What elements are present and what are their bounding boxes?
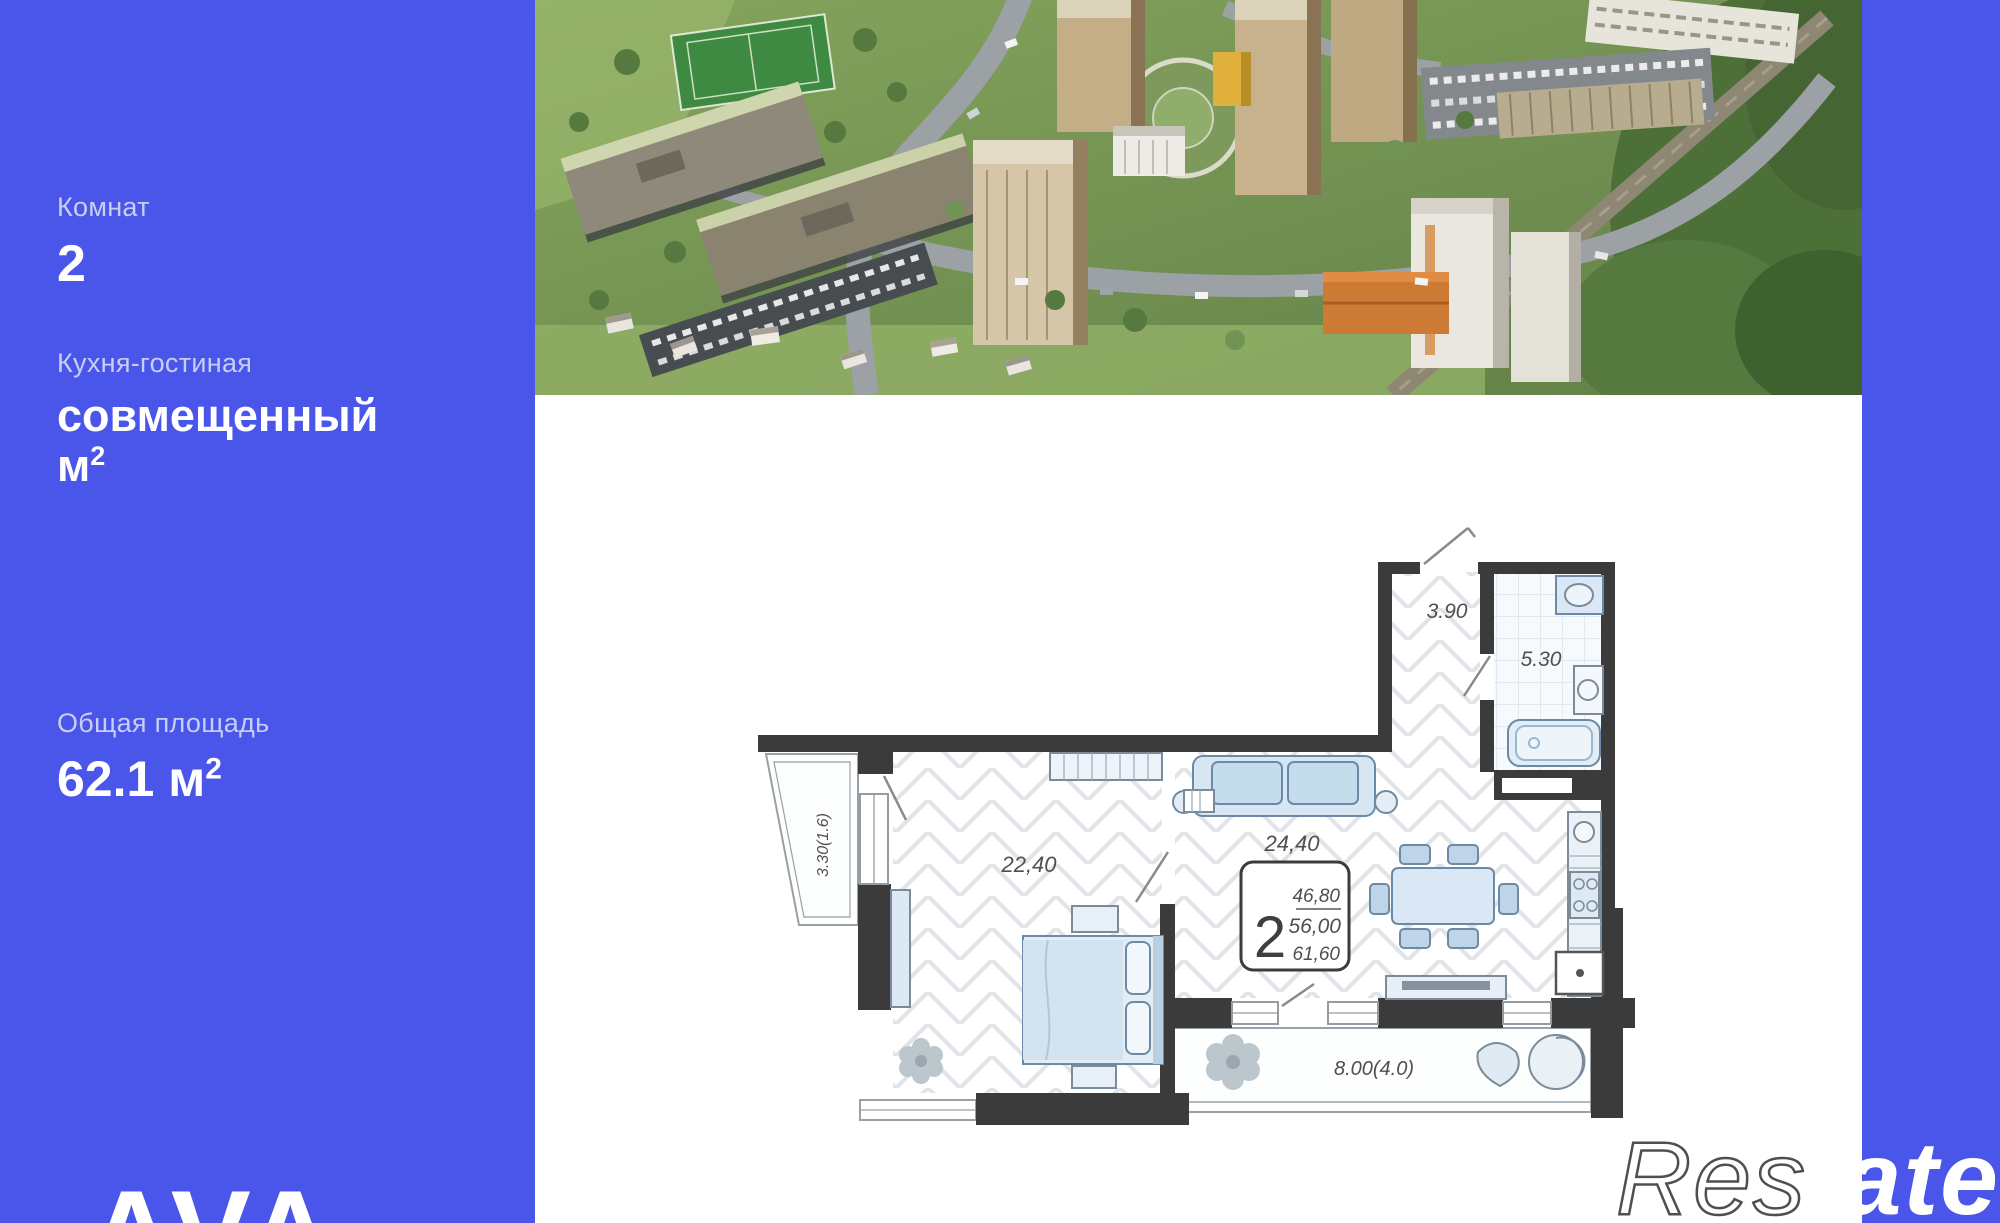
room-label-balcony-left: 3.30(1.6) <box>815 813 832 877</box>
wall-niche <box>1502 778 1572 793</box>
room-label-hall: 3.90 <box>1427 600 1468 623</box>
stat-rooms: Комнат 2 <box>57 192 150 293</box>
stats-area-3: 61,60 <box>1292 944 1340 965</box>
stat-total-value: 62.1 м2 <box>57 751 269 807</box>
stat-rooms-label: Комнат <box>57 192 150 223</box>
accent-strip <box>1862 0 2000 1223</box>
floor-plan-svg: 3.90 5.30 22,40 24,40 3.30(1.6) 8.00(4.0… <box>535 395 1862 1223</box>
listing-card: Комнат 2 Кухня-гостиная совмещенныйм2 Об… <box>0 0 2000 1223</box>
stat-total-label: Общая площадь <box>57 708 269 739</box>
watermark-restate: Restate <box>1616 1120 2000 1223</box>
floor-plan: 3.90 5.30 22,40 24,40 3.30(1.6) 8.00(4.0… <box>535 395 1862 1223</box>
main-panel: 3.90 5.30 22,40 24,40 3.30(1.6) 8.00(4.0… <box>535 0 1862 1223</box>
stat-kitchen-living: Кухня-гостиная совмещенныйм2 <box>57 348 457 492</box>
watermark-outline-part: Res <box>1616 1121 1807 1223</box>
stats-rooms-number: 2 <box>1254 905 1286 970</box>
room-label-bedroom: 22,40 <box>1000 852 1057 877</box>
stats-area-2: 56,00 <box>1288 915 1341 938</box>
stat-total-area: Общая площадь 62.1 м2 <box>57 708 269 807</box>
stat-kitchen-label: Кухня-гостиная <box>57 348 457 379</box>
stats-area-1: 46,80 <box>1292 886 1340 907</box>
ava-developer-logo: AVA <box>88 1164 339 1223</box>
classical-building <box>1113 126 1185 176</box>
stat-kitchen-value: совмещенныйм2 <box>57 391 457 492</box>
stat-rooms-value: 2 <box>57 235 150 293</box>
info-sidebar: Комнат 2 Кухня-гостиная совмещенныйм2 Об… <box>0 0 535 1223</box>
watermark-solid-part: tate <box>1807 1121 2000 1223</box>
room-label-balcony-bottom: 8.00(4.0) <box>1334 1058 1414 1080</box>
plan-stats-box: 2 46,80 56,00 61,60 <box>1241 862 1349 970</box>
room-label-living: 24,40 <box>1263 831 1320 856</box>
aerial-photo-illustration <box>535 0 1862 395</box>
aerial-photo <box>535 0 1862 395</box>
room-label-bath: 5.30 <box>1521 648 1562 671</box>
